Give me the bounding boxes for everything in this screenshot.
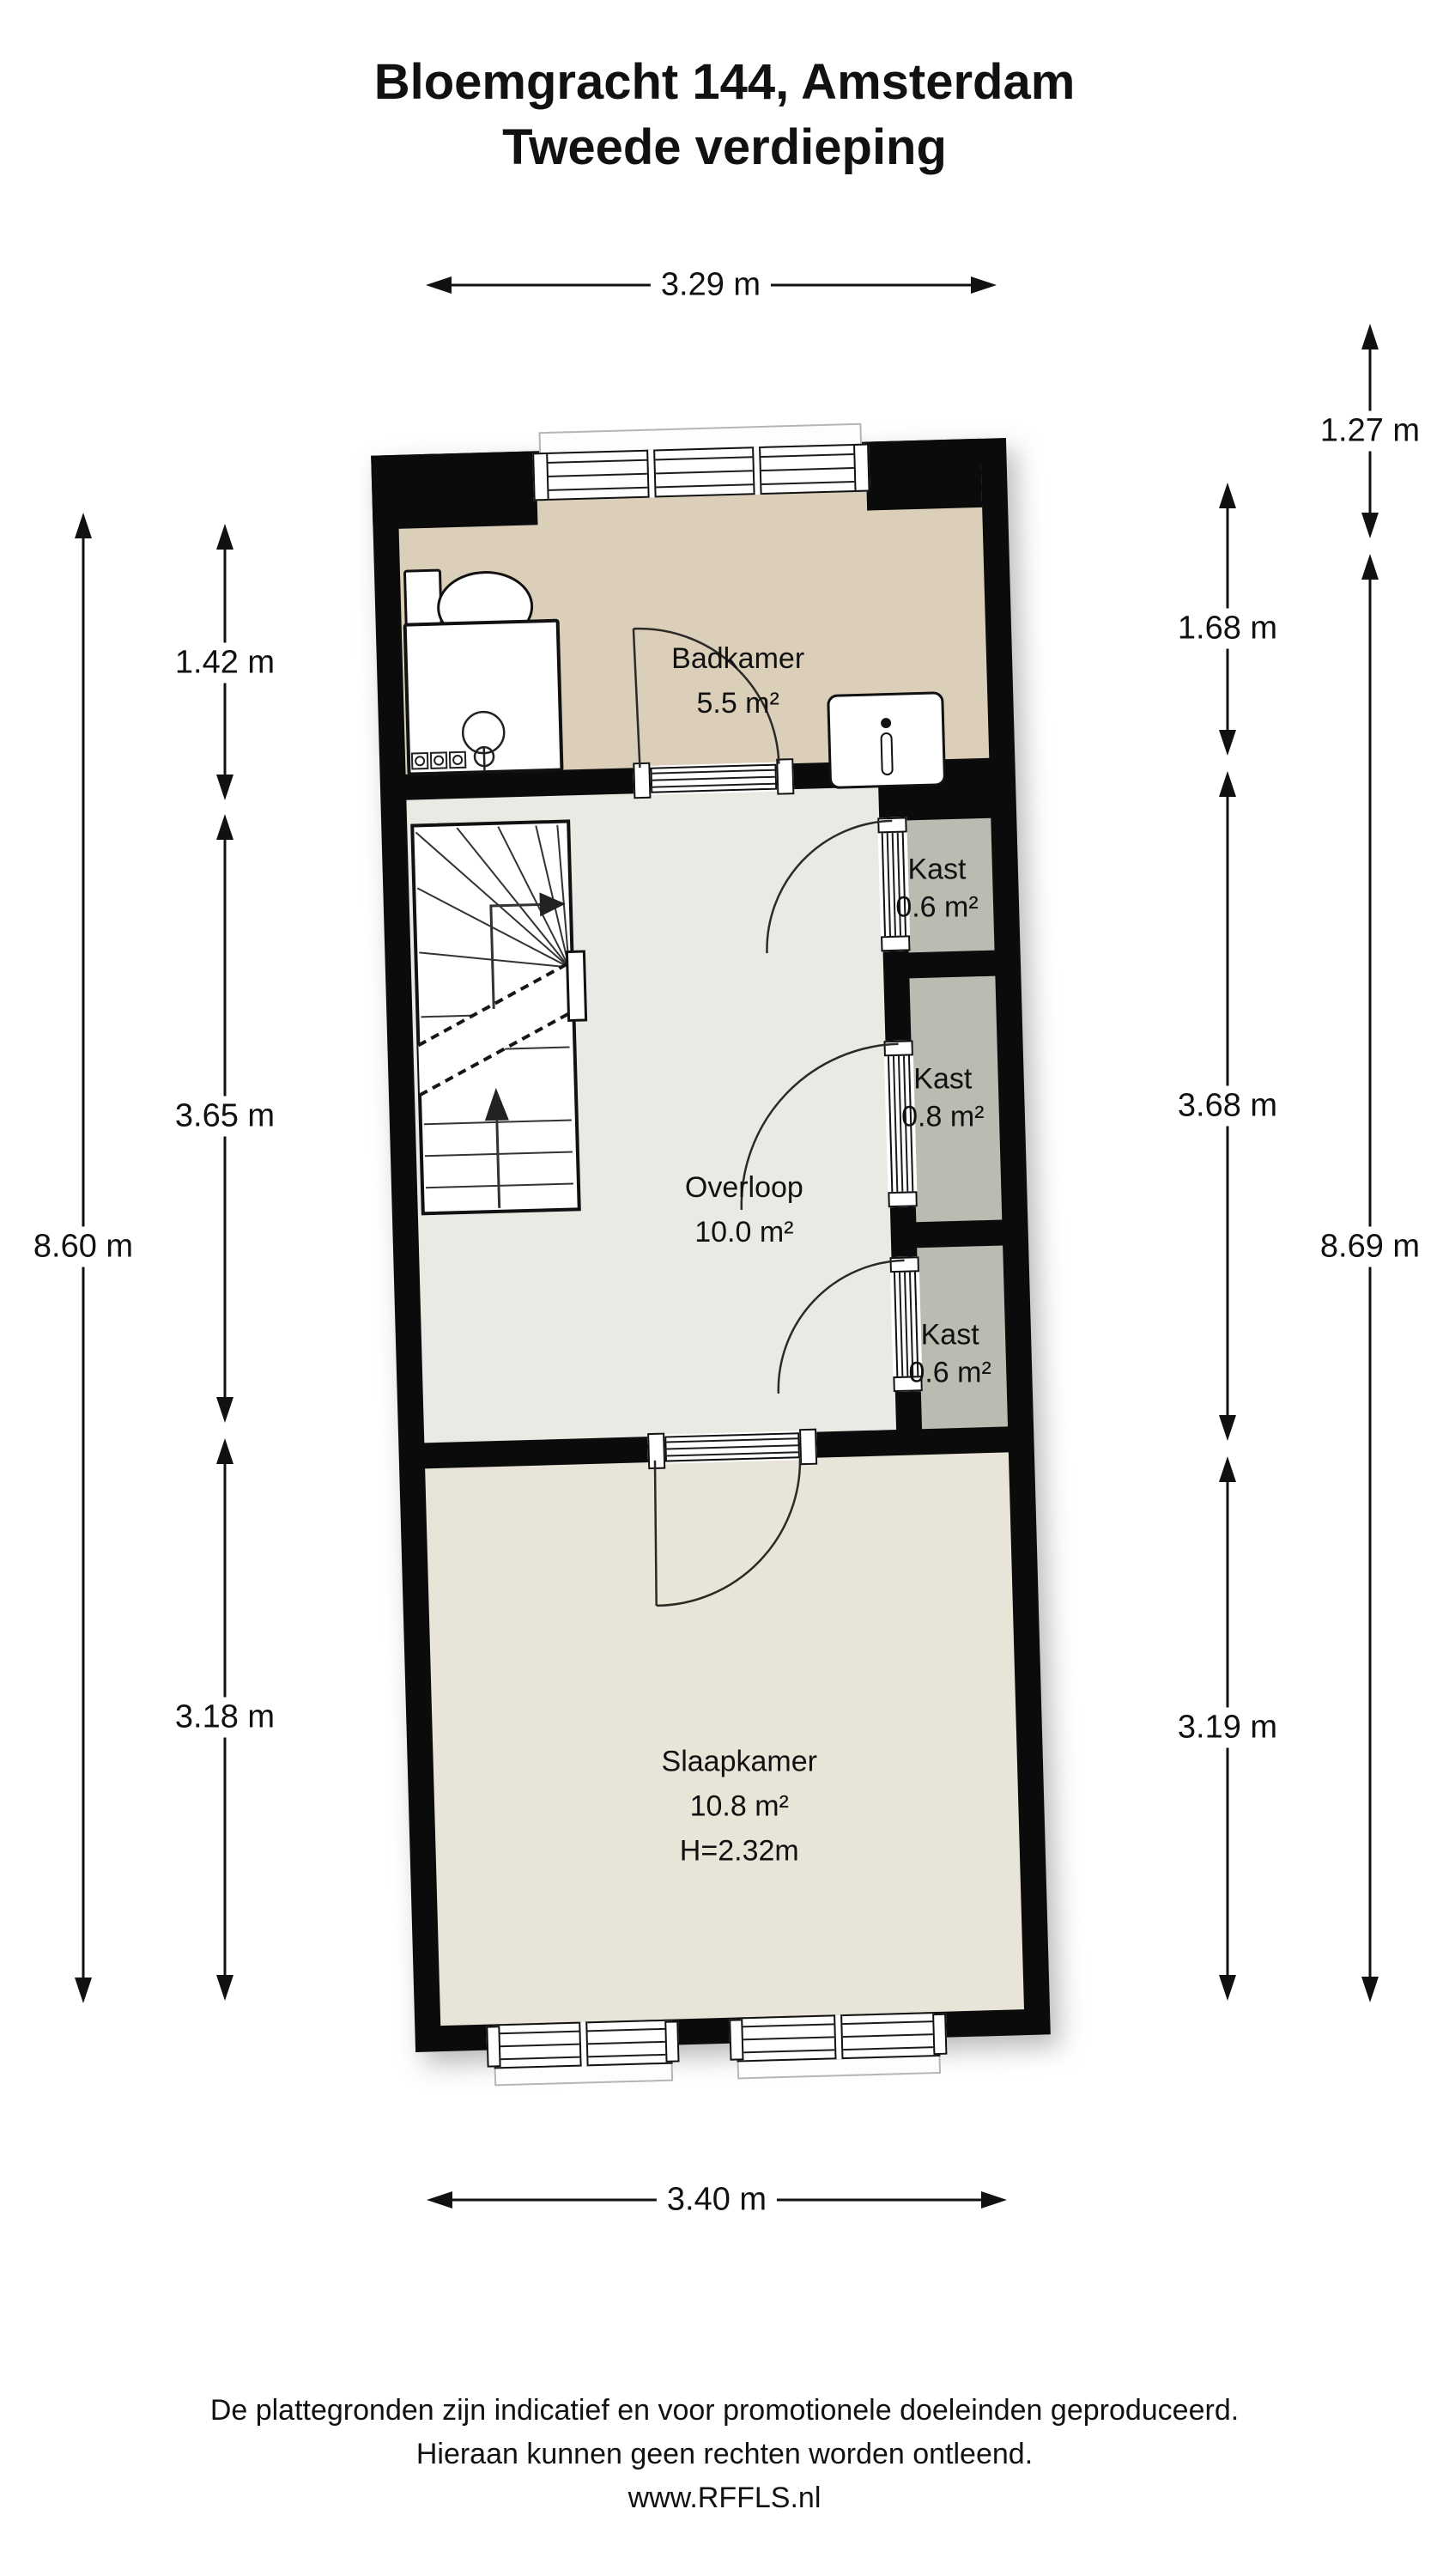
dim-right-inner-1: 1.68 m bbox=[1167, 609, 1288, 649]
stair-up-arrow bbox=[484, 1088, 509, 1121]
dim-right-inner-3: 3.19 m bbox=[1167, 1708, 1288, 1748]
dim-left-inner-2: 3.65 m bbox=[165, 1097, 285, 1137]
disclaimer-line-1: De plattegronden zijn indicatief en voor… bbox=[0, 2389, 1449, 2433]
overloop-label: Overloop 10.0 m² bbox=[633, 1165, 856, 1255]
slaapkamer-label: Slaapkamer 10.8 m² H=2.32m bbox=[627, 1739, 851, 1873]
room-name: Badkamer bbox=[627, 636, 850, 681]
kast-middle-label: Kast 0.8 m² bbox=[870, 1060, 1016, 1135]
room-height: H=2.32m bbox=[627, 1828, 851, 1873]
dim-left-inner-1: 1.42 m bbox=[165, 643, 285, 683]
badkamer-label: Badkamer 5.5 m² bbox=[627, 636, 850, 726]
room-area: 5.5 m² bbox=[627, 681, 850, 726]
dim-left-inner-3: 3.18 m bbox=[165, 1698, 285, 1738]
disclaimer-url: www.RFFLS.nl bbox=[0, 2476, 1449, 2520]
dim-right-outer-2: 8.69 m bbox=[1310, 1227, 1430, 1267]
disclaimer-line-2: Hieraan kunnen geen rechten worden ontle… bbox=[0, 2433, 1449, 2476]
room-area: 10.0 m² bbox=[633, 1210, 856, 1255]
room-name: Overloop bbox=[633, 1165, 856, 1210]
shower-controls-icon bbox=[412, 752, 465, 769]
slaapkamer-door-swing bbox=[652, 1456, 804, 1606]
slaapkamer-door-leaf bbox=[652, 1461, 659, 1606]
room-name: Kast bbox=[864, 850, 1010, 888]
disclaimer: De plattegronden zijn indicatief en voor… bbox=[0, 2389, 1449, 2520]
dim-top: 3.29 m bbox=[651, 265, 771, 306]
dim-right-outer-1: 1.27 m bbox=[1310, 411, 1430, 452]
room-name: Kast bbox=[877, 1315, 1023, 1353]
room-name: Kast bbox=[870, 1060, 1016, 1097]
stair-break-band bbox=[416, 962, 574, 1095]
dim-left-outer: 8.60 m bbox=[23, 1227, 143, 1267]
dim-right-inner-2: 3.68 m bbox=[1167, 1086, 1288, 1127]
room-area: 10.8 m² bbox=[627, 1783, 851, 1828]
dim-bottom: 3.40 m bbox=[657, 2180, 777, 2221]
kast-top-label: Kast 0.6 m² bbox=[864, 850, 1010, 926]
room-area: 0.8 m² bbox=[870, 1097, 1016, 1135]
stair-walkline bbox=[491, 904, 555, 1208]
floor-plan: Badkamer 5.5 m² Overloop 10.0 m² Kast 0.… bbox=[371, 438, 1051, 2052]
room-area: 0.6 m² bbox=[864, 888, 1010, 926]
room-name: Slaapkamer bbox=[627, 1739, 851, 1783]
washbasin-tap-icon bbox=[881, 718, 893, 775]
kast-bottom-label: Kast 0.6 m² bbox=[877, 1315, 1023, 1391]
stair-handrail bbox=[567, 951, 585, 1021]
shower-head-icon bbox=[463, 711, 506, 770]
room-area: 0.6 m² bbox=[877, 1353, 1023, 1391]
